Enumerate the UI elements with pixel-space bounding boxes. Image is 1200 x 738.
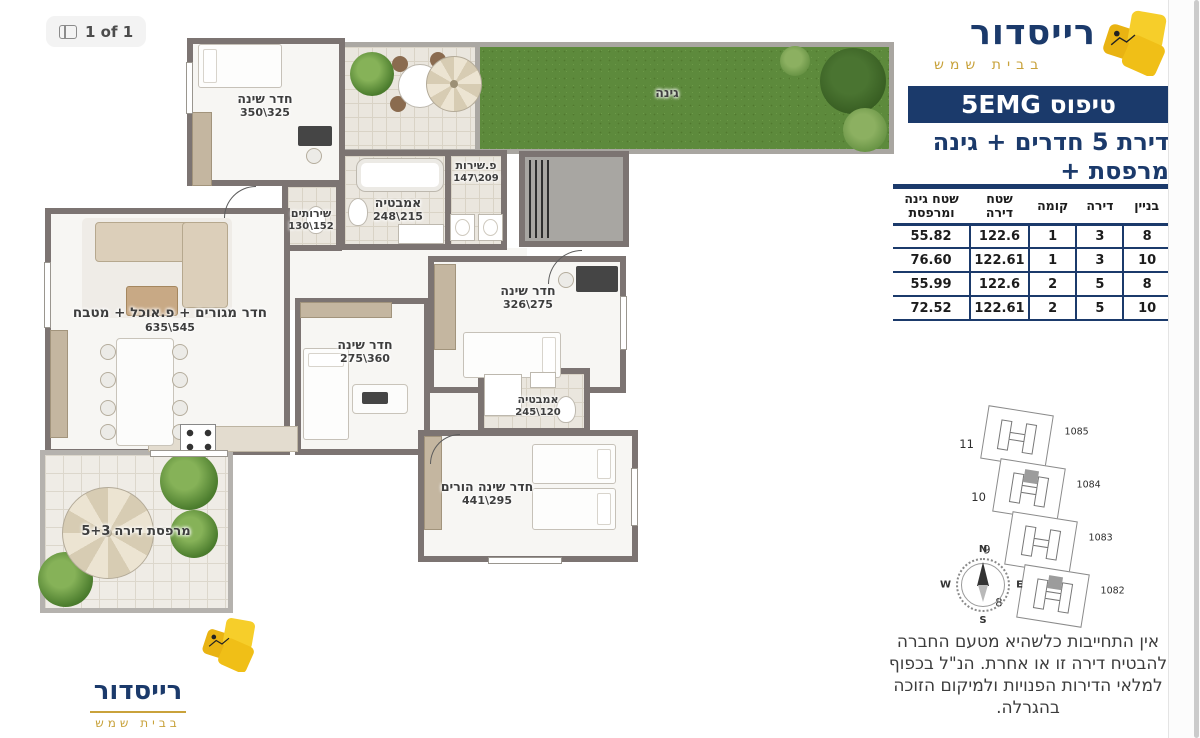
spec-cell: 55.99 xyxy=(893,272,970,296)
washer xyxy=(450,214,475,241)
label-balcony: מרפסת דירה 5+3 xyxy=(81,524,190,539)
subtitle-line2: + מרפסת xyxy=(880,157,1169,186)
compass-direction-label: S xyxy=(979,615,986,626)
spec-cell: 5 xyxy=(1076,272,1123,296)
spec-cell: 1 xyxy=(1029,248,1077,272)
label-bedroom-middle: חדר שינה 275\360 xyxy=(337,338,392,366)
apartment-subtitle: דירת 5 חדרים + גינה + מרפסת xyxy=(880,128,1169,186)
building-footprint-icon xyxy=(997,419,1037,454)
dining-chair xyxy=(100,344,116,360)
spec-cell: 10 xyxy=(1123,248,1170,272)
label-garden: גינה xyxy=(655,86,679,101)
compass-direction-label: E xyxy=(1016,580,1023,591)
brand-location: בבית שמש xyxy=(86,716,190,730)
spec-cell: 10 xyxy=(1123,296,1170,320)
type-banner: טיפוס 5EMG xyxy=(908,86,1169,123)
brand-gem-logo-icon xyxy=(198,616,260,672)
label-utility: פ.שירות 147\209 xyxy=(453,160,498,185)
site-lot: 91083 xyxy=(1004,511,1078,575)
label-bedroom-right: חדר שינה 326\275 xyxy=(500,284,555,312)
spec-table: בנייןדירהקומהשטח דירהשטח גינה ומרפסת 831… xyxy=(893,184,1170,321)
spec-col-header: שטח דירה xyxy=(970,187,1029,225)
spec-row: 1031122.6176.60 xyxy=(893,248,1170,272)
dining-chair xyxy=(172,372,188,388)
spec-row: 1052122.6172.52 xyxy=(893,296,1170,320)
toilet-fixture xyxy=(348,198,368,226)
compass-direction-label: W xyxy=(940,580,951,591)
spec-cell: 55.82 xyxy=(893,224,970,248)
scrollbar-thumb[interactable] xyxy=(1194,0,1199,738)
dining-chair xyxy=(100,424,116,440)
plant xyxy=(350,52,394,96)
spec-cell: 76.60 xyxy=(893,248,970,272)
label-bathroom-small: אמבטיה 245\120 xyxy=(515,394,560,419)
spec-cell: 3 xyxy=(1076,224,1123,248)
building-number: 11 xyxy=(959,437,974,451)
brand-divider xyxy=(90,711,186,713)
spec-row: 831122.655.82 xyxy=(893,224,1170,248)
spec-col-header: קומה xyxy=(1029,187,1077,225)
tree xyxy=(780,46,810,76)
spec-cell: 122.61 xyxy=(970,248,1029,272)
cabinet xyxy=(50,330,68,438)
compass-needle-icon xyxy=(978,585,988,602)
document-page: 1 of 1 xyxy=(0,0,1200,738)
door-arc xyxy=(224,186,256,218)
spec-table-body: 831122.655.821031122.6176.60852122.655.9… xyxy=(893,224,1170,320)
label-bedroom-parents: חדר שינה הורים 441\295 xyxy=(441,480,533,508)
highlighted-unit xyxy=(1047,575,1063,590)
bed xyxy=(198,44,282,88)
vanity-sink xyxy=(398,224,444,244)
tree xyxy=(820,48,886,114)
sink xyxy=(530,372,556,388)
stairs-icon xyxy=(535,160,537,238)
site-lot: 111085 xyxy=(980,405,1054,469)
spec-row: 852122.655.99 xyxy=(893,272,1170,296)
dining-chair xyxy=(100,400,116,416)
site-map: 1110851010849108381082 NESW xyxy=(948,400,1168,638)
label-toilet: שירותים 130\152 xyxy=(288,208,333,233)
building-footprint-icon xyxy=(1021,525,1061,560)
spec-col-header: בניין xyxy=(1123,187,1170,225)
bed xyxy=(532,488,616,530)
label-living: חדר מגורים + פ.אוכל + מטבח 635\545 xyxy=(73,306,267,335)
spec-cell: 122.6 xyxy=(970,224,1029,248)
highlighted-unit xyxy=(1023,469,1039,484)
sofa xyxy=(182,222,228,308)
compass-needle-icon xyxy=(977,562,989,586)
page-indicator-label: 1 of 1 xyxy=(85,23,133,41)
plant xyxy=(160,452,218,510)
parcel-number: 1084 xyxy=(1076,479,1100,490)
building-number: 10 xyxy=(971,490,986,504)
window xyxy=(631,468,638,526)
window xyxy=(488,557,562,564)
brand-name: רייסדור xyxy=(920,16,1096,51)
umbrella xyxy=(426,56,482,112)
label-bedroom-top: חדר שינה 350\325 xyxy=(237,92,292,120)
bathtub xyxy=(356,158,444,192)
spec-cell: 122.6 xyxy=(970,272,1029,296)
spec-cell: 8 xyxy=(1123,224,1170,248)
scrollbar-gutter xyxy=(1168,0,1200,738)
spec-cell: 72.52 xyxy=(893,296,970,320)
parcel-number: 1085 xyxy=(1064,426,1088,437)
window xyxy=(186,62,193,114)
subtitle-line1: דירת 5 חדרים + גינה xyxy=(880,128,1169,157)
spec-col-header: דירה xyxy=(1076,187,1123,225)
washer xyxy=(478,214,503,241)
desk-chair xyxy=(306,148,322,164)
label-bathroom-main: אמבטיה 248\215 xyxy=(373,196,423,224)
building-footprint-icon xyxy=(1009,472,1049,507)
bed xyxy=(532,444,616,484)
spec-cell: 5 xyxy=(1076,296,1123,320)
window xyxy=(620,296,627,350)
spec-cell: 3 xyxy=(1076,248,1123,272)
spec-cell: 1 xyxy=(1029,224,1077,248)
brand-header: רייסדור בבית שמש xyxy=(920,8,1170,76)
spec-cell: 8 xyxy=(1123,272,1170,296)
dining-chair xyxy=(172,344,188,360)
desk xyxy=(298,126,332,146)
compass-direction-label: N xyxy=(979,544,987,555)
disclaimer-text: אין התחייבות כלשהיא מטעם החברה להבטיח די… xyxy=(882,631,1174,719)
compass: NESW xyxy=(956,558,1010,612)
site-lot: 101084 xyxy=(992,458,1066,522)
building-footprint-icon xyxy=(1033,578,1073,613)
stairs-icon xyxy=(547,160,549,238)
parcel-number: 1082 xyxy=(1100,585,1124,596)
laptop-icon xyxy=(362,392,388,404)
dining-chair xyxy=(100,372,116,388)
brand-location: בבית שמש xyxy=(920,57,1096,73)
dining-table xyxy=(116,338,174,446)
spec-col-header: שטח גינה ומרפסת xyxy=(893,187,970,225)
parcel-number: 1083 xyxy=(1088,532,1112,543)
pages-panel-icon xyxy=(59,25,77,39)
wardrobe xyxy=(192,112,212,186)
brand-name: רייסדור xyxy=(86,676,190,706)
wardrobe xyxy=(300,302,392,318)
window xyxy=(44,262,51,328)
stairs-icon xyxy=(529,160,531,238)
page-indicator[interactable]: 1 of 1 xyxy=(46,16,146,47)
wardrobe xyxy=(434,264,456,350)
desk xyxy=(576,266,618,292)
spec-table-head-row: בנייןדירהקומהשטח דירהשטח גינה ומרפסת xyxy=(893,187,1170,225)
spec-cell: 2 xyxy=(1029,272,1077,296)
dining-chair xyxy=(172,400,188,416)
site-lot: 81082 xyxy=(1016,564,1090,628)
spec-cell: 122.61 xyxy=(970,296,1029,320)
brand-gem-logo-icon xyxy=(1100,8,1170,76)
spec-cell: 2 xyxy=(1029,296,1077,320)
stairs-icon xyxy=(541,160,543,238)
window xyxy=(150,450,228,457)
